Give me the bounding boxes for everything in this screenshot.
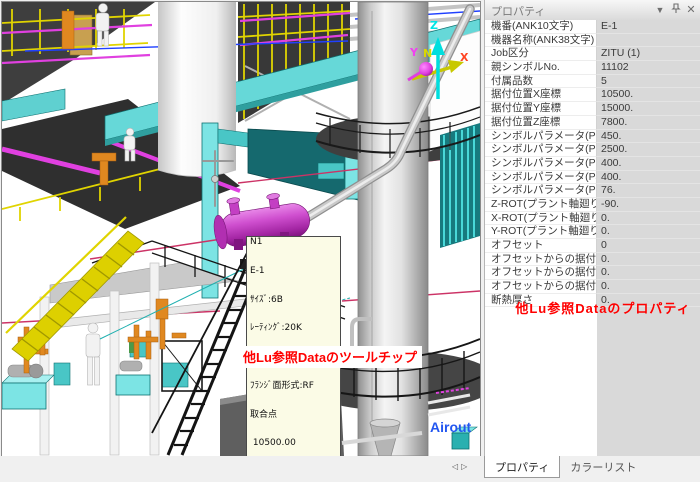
property-row: 据付位置Y座標 15000. xyxy=(485,102,700,116)
property-value[interactable]: 0. xyxy=(597,225,700,239)
property-row: Z-ROT(プラント軸廻り) -90. xyxy=(485,198,700,212)
property-name: 機器名称(ANK38文字) xyxy=(485,34,597,48)
property-value[interactable] xyxy=(597,34,700,48)
property-value[interactable]: 0 xyxy=(597,239,700,253)
tooltip-line: 10500.00 xyxy=(250,439,338,449)
property-name: Z-ROT(プラント軸廻り) xyxy=(485,198,597,212)
tooltip-line: 取合点 xyxy=(250,411,338,421)
property-value[interactable]: 0. xyxy=(597,266,700,280)
property-name: オフセットからの据付位置ΔY xyxy=(485,266,597,280)
axis-n-label: N xyxy=(423,47,432,60)
tooltip-line: N1 xyxy=(250,238,338,248)
panel-title: プロパティ xyxy=(491,3,545,19)
property-row: オフセットからの据付位置ΔY 0. xyxy=(485,266,700,280)
tab-scroll-arrows[interactable]: ◁▷ xyxy=(452,462,470,471)
3d-viewport[interactable]: N1 E-1 ｻｲｽﾞ:6B ﾚｰﾃｨﾝｸﾞ:20K 接続ﾀｲﾌﾟ:FLG ﾌﾗ… xyxy=(1,1,481,457)
tooltip-line: ﾚｰﾃｨﾝｸﾞ:20K xyxy=(250,324,338,334)
property-name: シンボルパラメータ(P4) xyxy=(485,171,597,185)
property-name: オフセットからの据付位置ΔX xyxy=(485,253,597,267)
white-column[interactable] xyxy=(158,2,236,177)
close-icon[interactable]: ✕ xyxy=(684,3,698,17)
property-row: 機番(ANK10文字) E-1 xyxy=(485,20,700,34)
property-name: 親シンボルNo. xyxy=(485,61,597,75)
axis-y-label: Y xyxy=(410,46,418,59)
nozzle-label: Airout xyxy=(430,419,471,435)
property-value[interactable]: 400. xyxy=(597,157,700,171)
property-name: シンボルパラメータ(P1) xyxy=(485,130,597,144)
property-value[interactable]: 450. xyxy=(597,130,700,144)
axis-z-label: Z xyxy=(430,19,438,32)
pin-icon[interactable] xyxy=(669,3,683,17)
property-name: シンボルパラメータ(P3) xyxy=(485,157,597,171)
property-name: オフセットからの据付位置ΔZ xyxy=(485,280,597,294)
property-row: X-ROT(プラント軸廻り) 0. xyxy=(485,212,700,226)
plant-3d-scene xyxy=(2,2,480,456)
property-value[interactable]: ZITU (1) xyxy=(597,47,700,61)
property-value[interactable]: -90. xyxy=(597,198,700,212)
property-name: シンボルパラメータ(P2) xyxy=(485,143,597,157)
panel-tabs: プロパティ カラーリスト xyxy=(484,456,646,478)
property-name: 付属品数 xyxy=(485,75,597,89)
tooltip-line: E-1 xyxy=(250,267,338,277)
property-name: 据付位置Y座標 xyxy=(485,102,597,116)
property-value[interactable]: 0. xyxy=(597,253,700,267)
gray-tower-column[interactable] xyxy=(358,2,428,456)
property-value[interactable]: 0. xyxy=(597,280,700,294)
property-value[interactable]: 11102 xyxy=(597,61,700,75)
axis-x-label: X xyxy=(460,51,468,64)
tooltip-line: ｻｲｽﾞ:6B xyxy=(250,296,338,306)
property-row: シンボルパラメータ(P3) 400. xyxy=(485,157,700,171)
property-row: オフセットからの据付位置ΔZ 0. xyxy=(485,280,700,294)
property-name: X-ROT(プラント軸廻り) xyxy=(485,212,597,226)
property-row: 機器名称(ANK38文字) xyxy=(485,34,700,48)
property-row: Y-ROT(プラント軸廻り) 0. xyxy=(485,225,700,239)
property-value[interactable]: 15000. xyxy=(597,102,700,116)
property-value[interactable]: 10500. xyxy=(597,88,700,102)
property-grid: 機番(ANK10文字) E-1 機器名称(ANK38文字) Job区分 ZITU… xyxy=(485,20,700,456)
property-row: シンボルパラメータ(P5) 76. xyxy=(485,184,700,198)
property-value[interactable]: 400. xyxy=(597,171,700,185)
panel-header[interactable]: プロパティ ▼ ✕ xyxy=(485,0,700,21)
property-row: オフセットからの据付位置ΔX 0. xyxy=(485,253,700,267)
property-row: シンボルパラメータ(P2) 2500. xyxy=(485,143,700,157)
property-value[interactable]: E-1 xyxy=(597,20,700,34)
property-name: Job区分 xyxy=(485,47,597,61)
property-row: シンボルパラメータ(P1) 450. xyxy=(485,130,700,144)
tooltip-line: ﾌﾗﾝｼﾞ面形式:RF xyxy=(250,382,338,392)
property-value[interactable]: 0. xyxy=(597,212,700,226)
property-value[interactable]: 7800. xyxy=(597,116,700,130)
tab-properties[interactable]: プロパティ xyxy=(484,456,560,478)
property-value[interactable]: 76. xyxy=(597,184,700,198)
property-row: 親シンボルNo. 11102 xyxy=(485,61,700,75)
property-name: Y-ROT(プラント軸廻り) xyxy=(485,225,597,239)
app-window: { "panel": { "title": "プロパティ", "annotati… xyxy=(0,0,700,482)
properties-panel: プロパティ ▼ ✕ 機番(ANK10文字) E-1 機器名称(ANK38文字) … xyxy=(484,0,700,457)
property-value[interactable]: 5 xyxy=(597,75,700,89)
bottom-tab-bar: ◁▷ プロパティ カラーリスト xyxy=(0,456,700,482)
property-row: Job区分 ZITU (1) xyxy=(485,47,700,61)
panel-annotation: 他Lu参照Dataのプロパティ xyxy=(515,298,691,317)
property-name: 据付位置Z座標 xyxy=(485,116,597,130)
panel-menu-icon[interactable]: ▼ xyxy=(653,3,667,17)
property-row: シンボルパラメータ(P4) 400. xyxy=(485,171,700,185)
tab-colorlist[interactable]: カラーリスト xyxy=(560,456,646,478)
tooltip-annotation: 他Lu参照Dataのツールチップ xyxy=(238,346,422,368)
property-row: 据付位置Z座標 7800. xyxy=(485,116,700,130)
property-value[interactable]: 2500. xyxy=(597,143,700,157)
property-row: 付属品数 5 xyxy=(485,75,700,89)
property-name: 据付位置X座標 xyxy=(485,88,597,102)
property-name: オフセット xyxy=(485,239,597,253)
property-row: オフセット 0 xyxy=(485,239,700,253)
property-row: 据付位置X座標 10500. xyxy=(485,88,700,102)
property-name: シンボルパラメータ(P5) xyxy=(485,184,597,198)
property-name: 機番(ANK10文字) xyxy=(485,20,597,34)
